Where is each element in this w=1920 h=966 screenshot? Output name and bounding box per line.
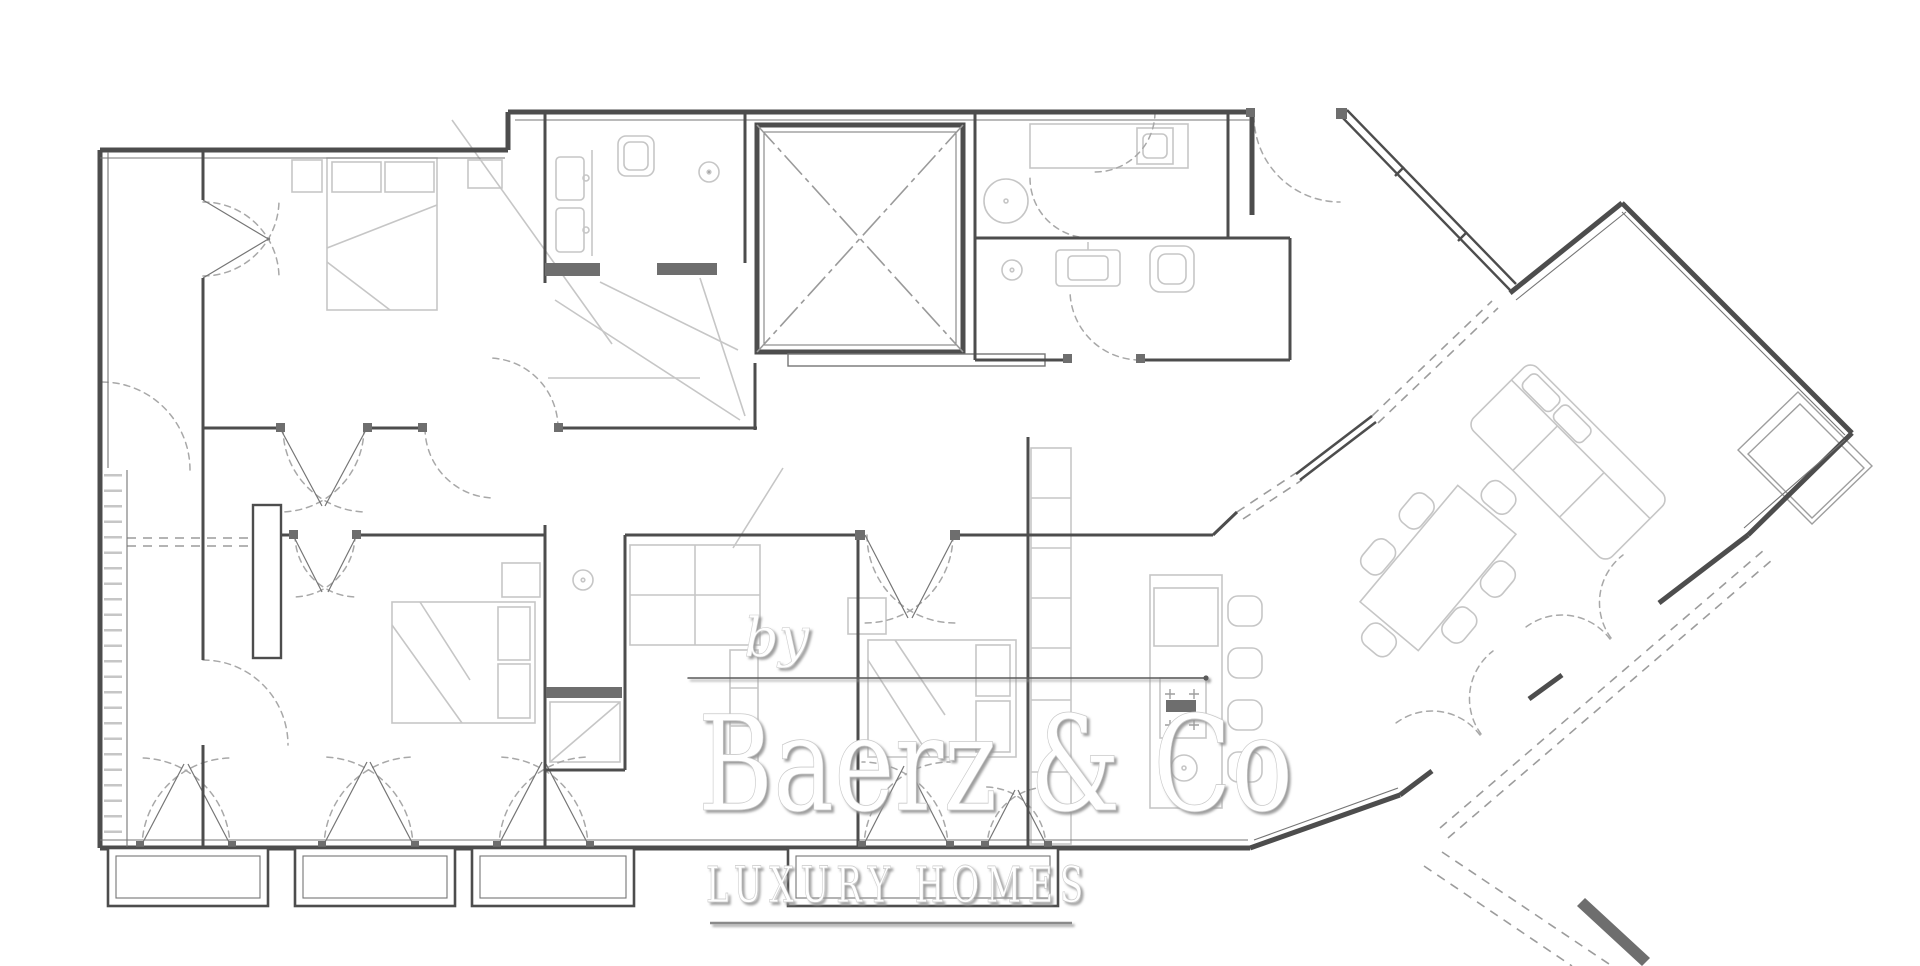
balcony-stair-mark xyxy=(1577,898,1650,966)
watermark-rule-dot xyxy=(1203,675,1208,680)
laundry-fixtures xyxy=(984,124,1188,223)
wc-fixtures xyxy=(1002,242,1194,292)
dining-set xyxy=(1319,444,1556,691)
elevator-shaft xyxy=(757,125,1045,366)
balcony-right xyxy=(1738,392,1872,524)
balcony-railing xyxy=(1448,560,1772,838)
floor-plan-page: by Baerz & Co LUXURY HOMES xyxy=(0,0,1920,966)
bed-master xyxy=(292,158,502,310)
watermark-prefix: by xyxy=(744,606,811,669)
watermark: by Baerz & Co LUXURY HOMES xyxy=(688,606,1293,923)
watermark-tagline: LUXURY HOMES xyxy=(706,856,1090,914)
bed-second xyxy=(392,563,540,723)
watermark-brand: Baerz & Co xyxy=(698,688,1293,842)
bench-shelf xyxy=(545,263,600,276)
shower-room-fixtures xyxy=(550,570,620,762)
window-wall-diagonal xyxy=(1341,110,1516,290)
sofa xyxy=(1467,361,1669,563)
floor-plan-canvas: by Baerz & Co LUXURY HOMES xyxy=(0,0,1920,966)
sliding-window-segment xyxy=(1296,416,1376,480)
shower-glass-top xyxy=(657,263,717,275)
shower-glass-bottom xyxy=(546,687,622,698)
